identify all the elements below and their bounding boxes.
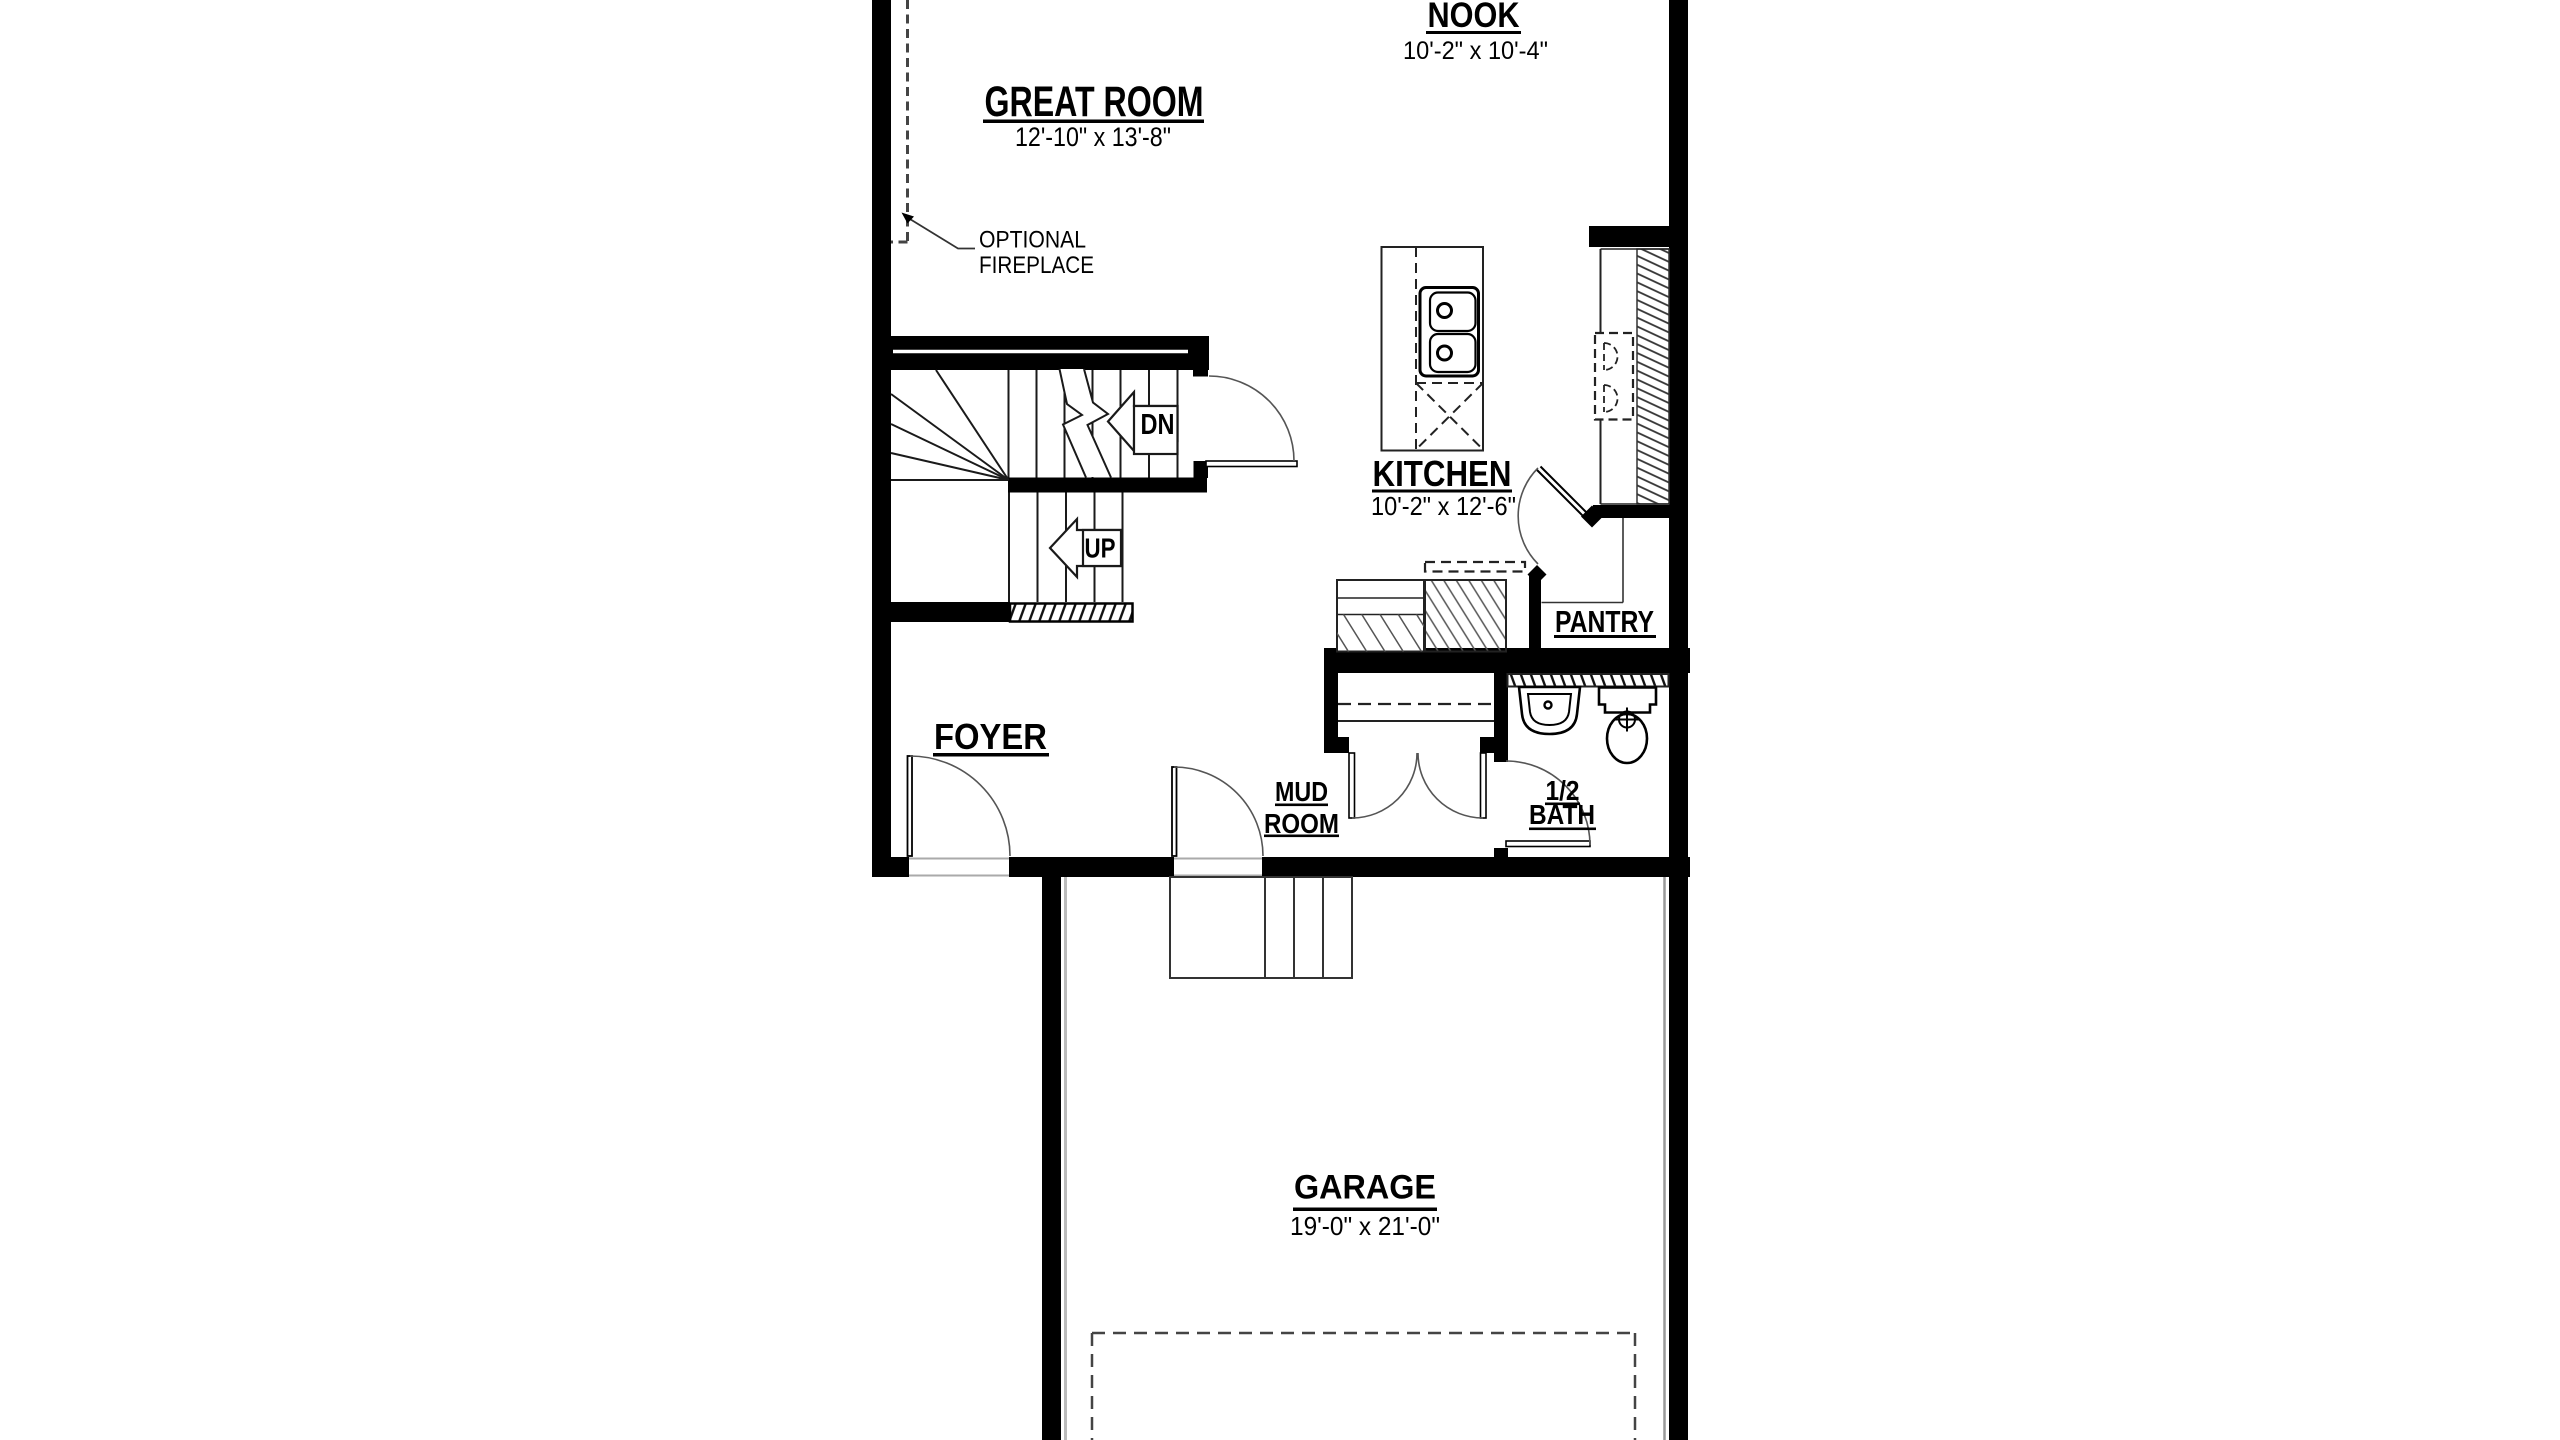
svg-text:NOOK: NOOK	[1428, 0, 1520, 35]
svg-text:PANTRY: PANTRY	[1555, 604, 1654, 639]
svg-text:KITCHEN: KITCHEN	[1373, 453, 1512, 494]
svg-text:UP: UP	[1085, 533, 1116, 564]
svg-text:DN: DN	[1141, 409, 1175, 441]
svg-text:10'-2" x 10'-4": 10'-2" x 10'-4"	[1403, 37, 1548, 65]
svg-text:10'-2" x 12'-6": 10'-2" x 12'-6"	[1371, 491, 1516, 521]
svg-text:19'-0" x 21'-0": 19'-0" x 21'-0"	[1290, 1211, 1440, 1241]
svg-text:ROOM: ROOM	[1264, 808, 1339, 839]
svg-text:GARAGE: GARAGE	[1294, 1169, 1436, 1207]
svg-text:FOYER: FOYER	[934, 716, 1047, 757]
svg-text:OPTIONAL: OPTIONAL	[979, 227, 1086, 254]
svg-text:MUD: MUD	[1275, 776, 1328, 807]
svg-text:FIREPLACE: FIREPLACE	[979, 252, 1094, 279]
svg-text:BATH: BATH	[1529, 799, 1595, 830]
svg-text:12'-10" x 13'-8": 12'-10" x 13'-8"	[1015, 122, 1171, 152]
svg-text:GREAT ROOM: GREAT ROOM	[985, 78, 1204, 126]
